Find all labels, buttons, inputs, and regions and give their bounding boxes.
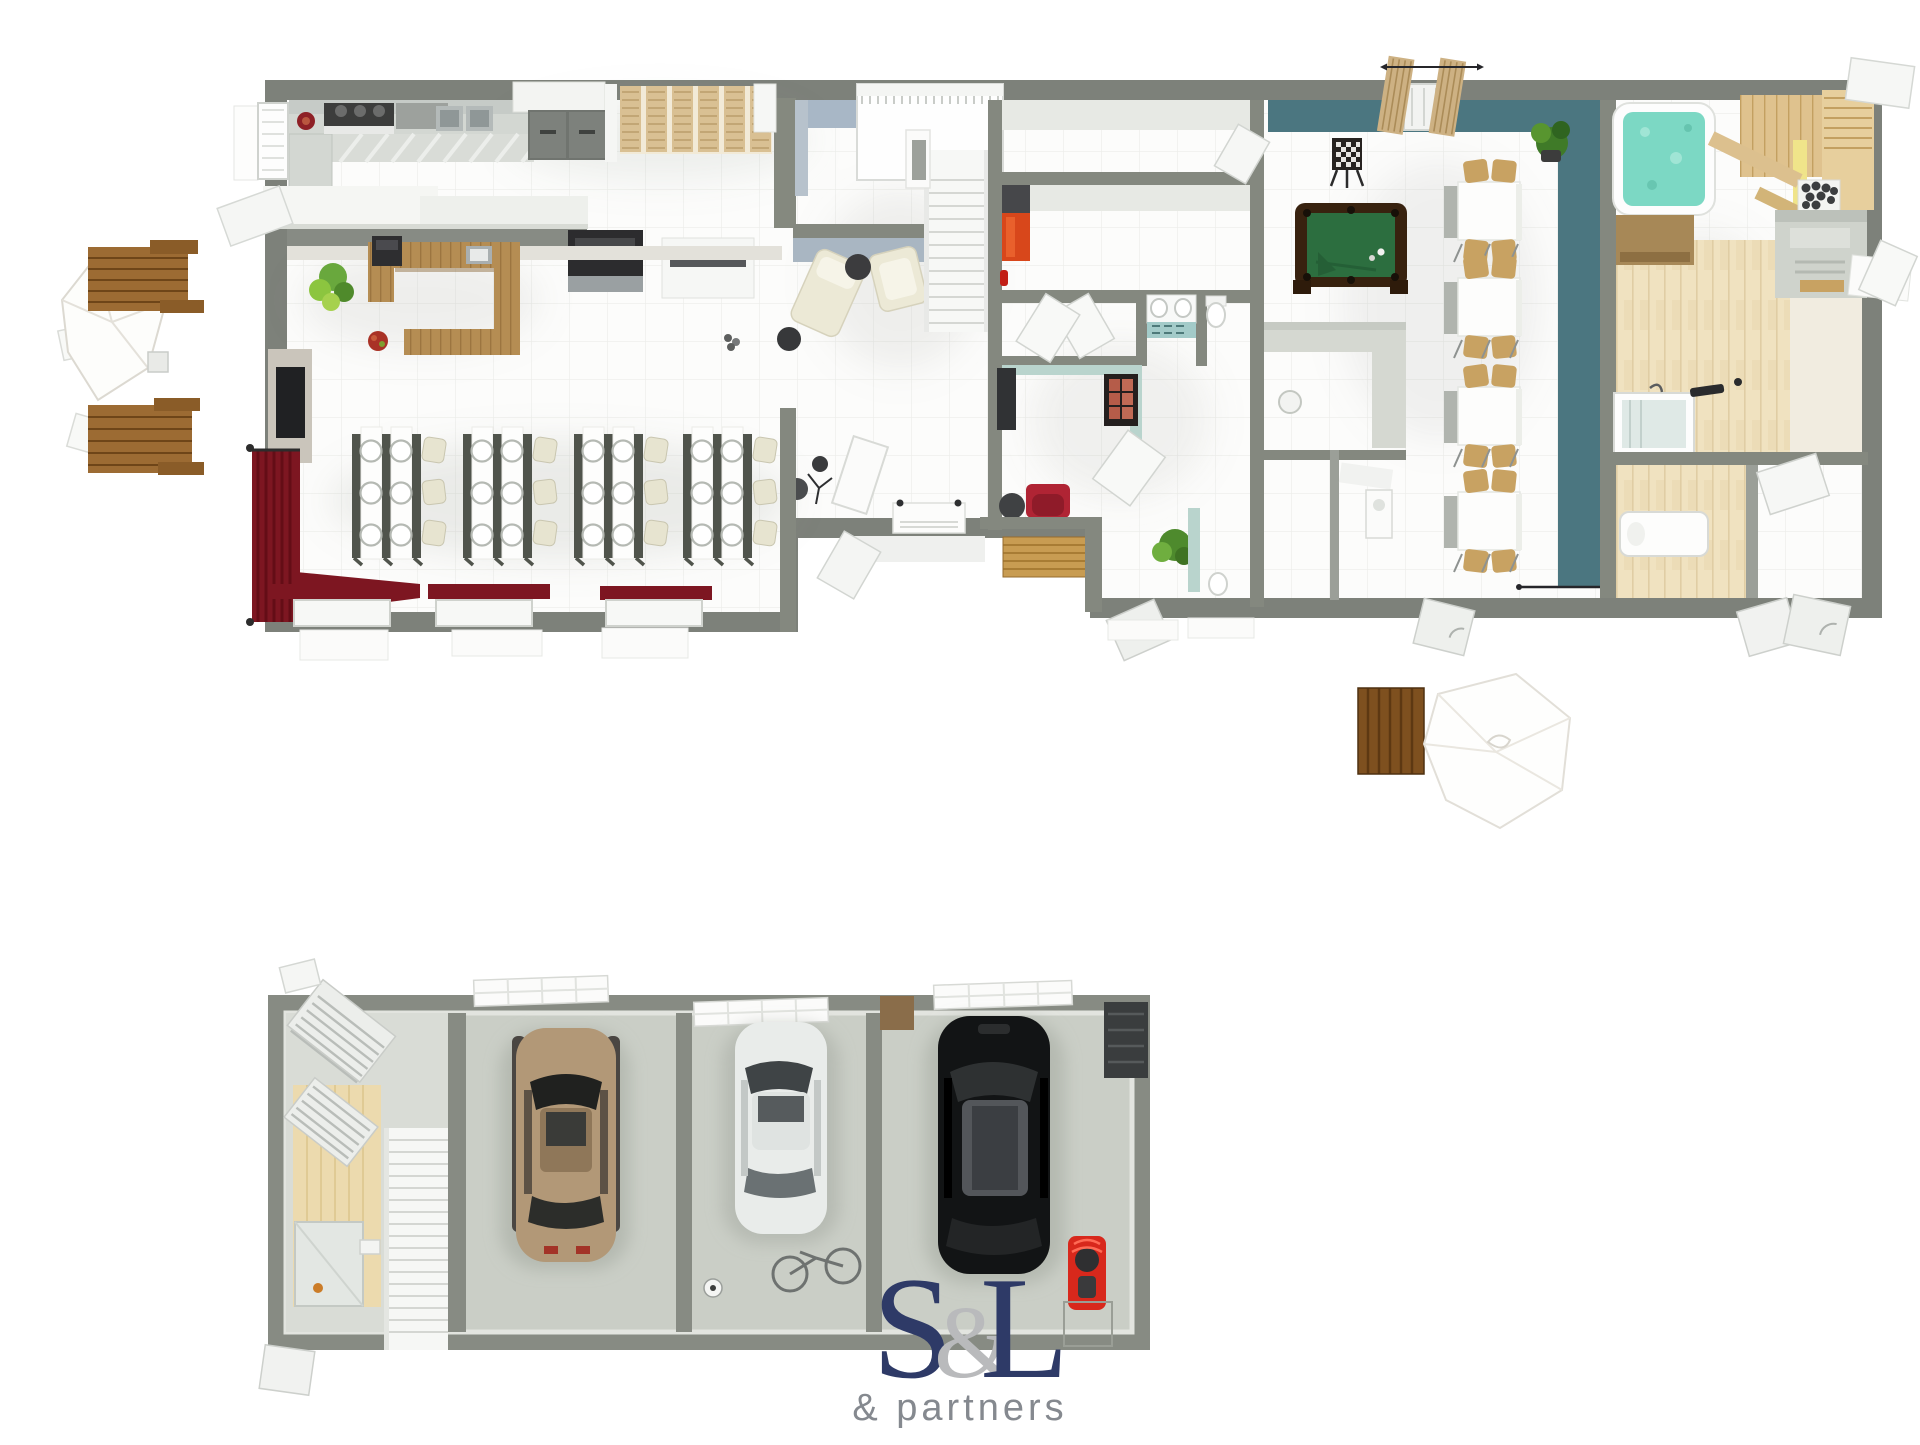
svg-text:& partners: & partners [852, 1387, 1067, 1429]
svg-text:L: L [980, 1247, 1069, 1409]
